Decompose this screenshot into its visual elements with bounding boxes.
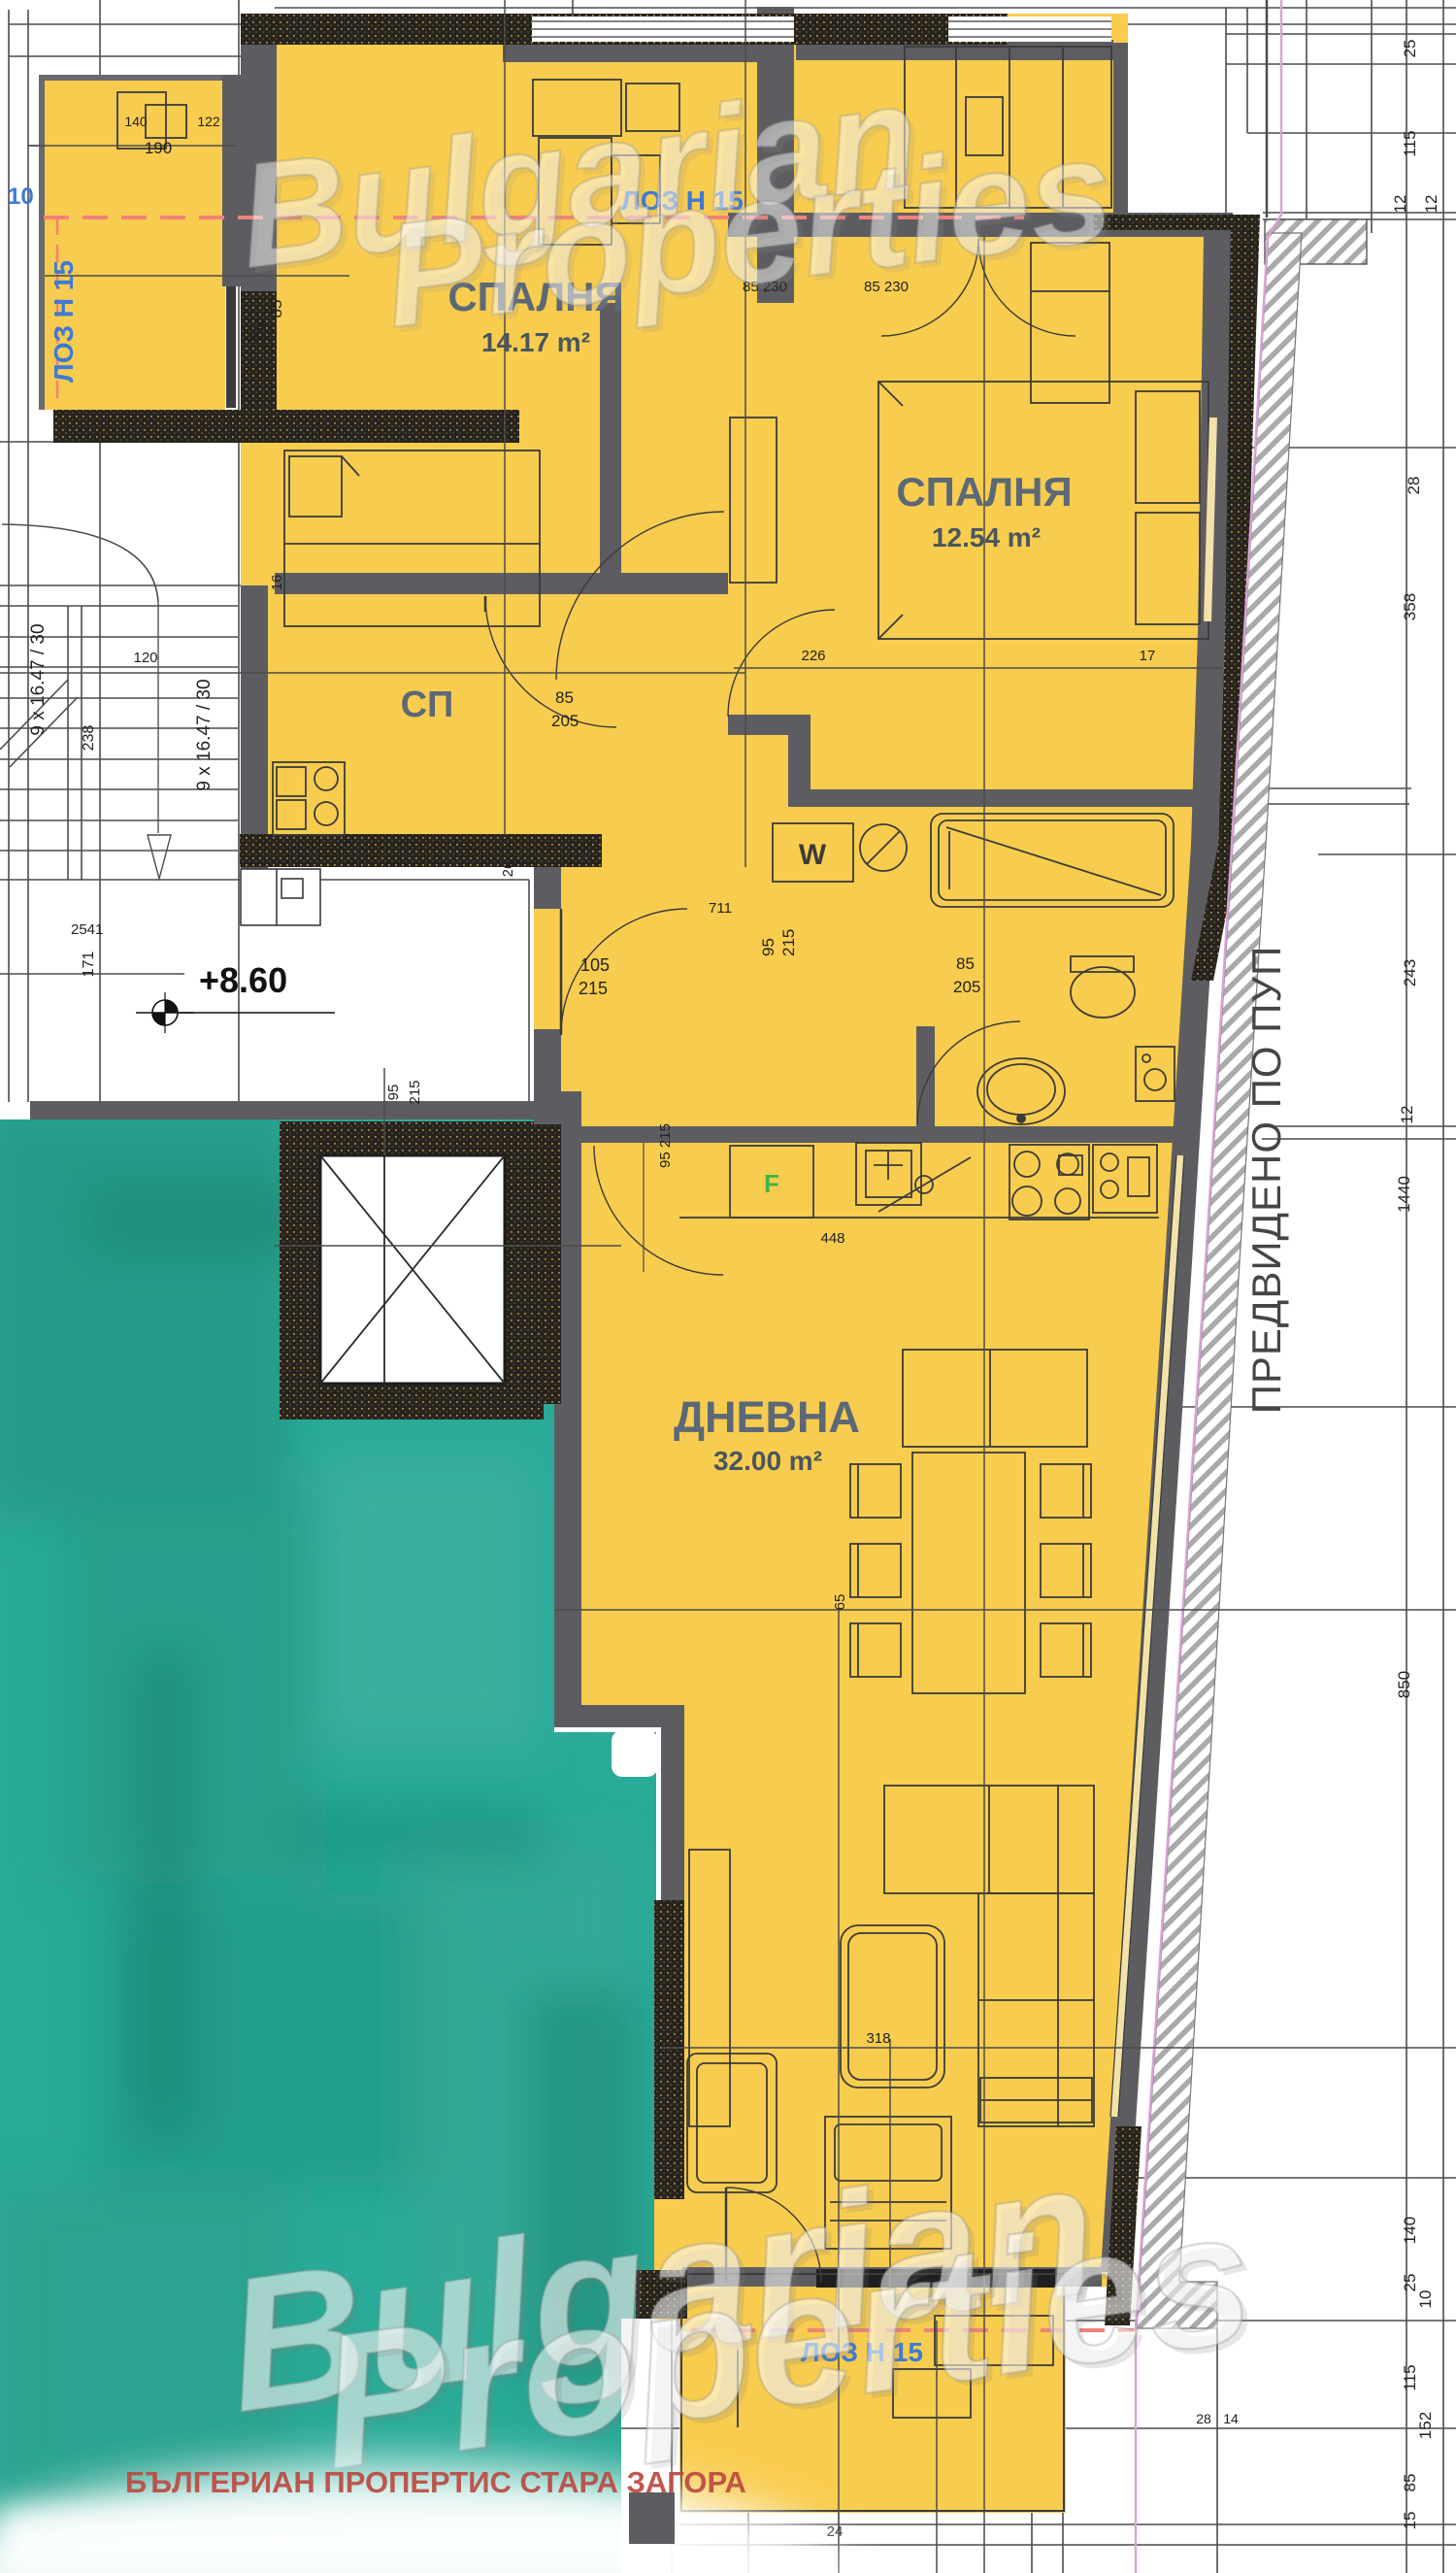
svg-text:9 x 16.47 / 30: 9 x 16.47 / 30 [28, 623, 49, 735]
svg-text:17: 17 [1140, 648, 1156, 664]
svg-text:711: 711 [709, 900, 732, 917]
svg-text:215: 215 [407, 1080, 423, 1104]
svg-text:F: F [764, 1169, 779, 1198]
svg-text:122: 122 [197, 114, 220, 129]
svg-text:ЛОЗ Н 15: ЛОЗ Н 15 [49, 260, 79, 383]
svg-text:12: 12 [1398, 1106, 1416, 1124]
svg-text:65: 65 [832, 1594, 848, 1611]
svg-text:БЪЛГЕРИАН ПРОПЕРТИС СТАРА ЗАГО: БЪЛГЕРИАН ПРОПЕРТИС СТАРА ЗАГОРА [125, 2465, 746, 2499]
svg-text:215: 215 [779, 929, 798, 956]
svg-text:24: 24 [827, 2523, 844, 2540]
svg-text:ПРЕДВИДЕНО ПО ПУП: ПРЕДВИДЕНО ПО ПУП [1243, 946, 1289, 1415]
svg-text:140: 140 [124, 114, 148, 129]
svg-text:226: 226 [801, 648, 825, 664]
svg-text:105: 105 [580, 955, 610, 975]
svg-text:32.00 m²: 32.00 m² [713, 1446, 822, 1476]
svg-text:205: 205 [953, 978, 980, 996]
svg-text:W: W [799, 839, 827, 871]
svg-text:10: 10 [1416, 2290, 1435, 2309]
svg-text:95: 95 [759, 938, 778, 956]
svg-text:115: 115 [1401, 2364, 1419, 2390]
svg-text:243: 243 [1401, 959, 1419, 986]
svg-text:238: 238 [81, 725, 97, 752]
svg-text:120: 120 [133, 650, 157, 666]
svg-text:16: 16 [269, 575, 285, 591]
svg-text:448: 448 [820, 1230, 844, 1247]
svg-text:12.54 m²: 12.54 m² [932, 522, 1041, 552]
svg-text:+8.60: +8.60 [199, 960, 287, 1000]
svg-text:140: 140 [1401, 2217, 1419, 2244]
svg-text:26: 26 [500, 861, 516, 878]
svg-text:СП: СП [401, 685, 454, 725]
svg-text:15: 15 [1401, 2512, 1419, 2530]
svg-text:850: 850 [1395, 1671, 1413, 1698]
svg-text:358: 358 [1401, 593, 1419, 620]
svg-text:85: 85 [956, 954, 975, 973]
svg-text:95 215: 95 215 [657, 1123, 674, 1168]
svg-text:10: 10 [8, 184, 34, 210]
svg-text:171: 171 [81, 952, 97, 978]
svg-text:318: 318 [866, 2030, 890, 2047]
svg-text:115: 115 [1401, 130, 1419, 156]
svg-text:1440: 1440 [1395, 1176, 1413, 1213]
svg-text:9 x 16.47 / 30: 9 x 16.47 / 30 [194, 679, 215, 790]
svg-text:205: 205 [551, 712, 579, 730]
svg-text:215: 215 [579, 979, 608, 998]
svg-text:25: 25 [1401, 40, 1419, 58]
svg-text:85: 85 [555, 688, 574, 707]
svg-text:95: 95 [385, 1085, 402, 1101]
svg-text:14: 14 [1223, 2411, 1239, 2426]
svg-text:152: 152 [1416, 2412, 1435, 2439]
svg-text:28: 28 [1196, 2411, 1211, 2426]
svg-text:85: 85 [1401, 2474, 1419, 2492]
svg-text:12: 12 [1422, 195, 1440, 214]
svg-text:СПАЛНЯ: СПАЛНЯ [896, 469, 1072, 515]
svg-text:28: 28 [1405, 477, 1423, 495]
svg-text:ДНЕВНА: ДНЕВНА [674, 1392, 860, 1442]
svg-text:2541: 2541 [71, 921, 103, 938]
svg-text:230: 230 [249, 321, 268, 349]
svg-text:190: 190 [145, 139, 172, 157]
svg-text:25: 25 [1401, 2274, 1419, 2292]
svg-text:12: 12 [1391, 195, 1409, 214]
